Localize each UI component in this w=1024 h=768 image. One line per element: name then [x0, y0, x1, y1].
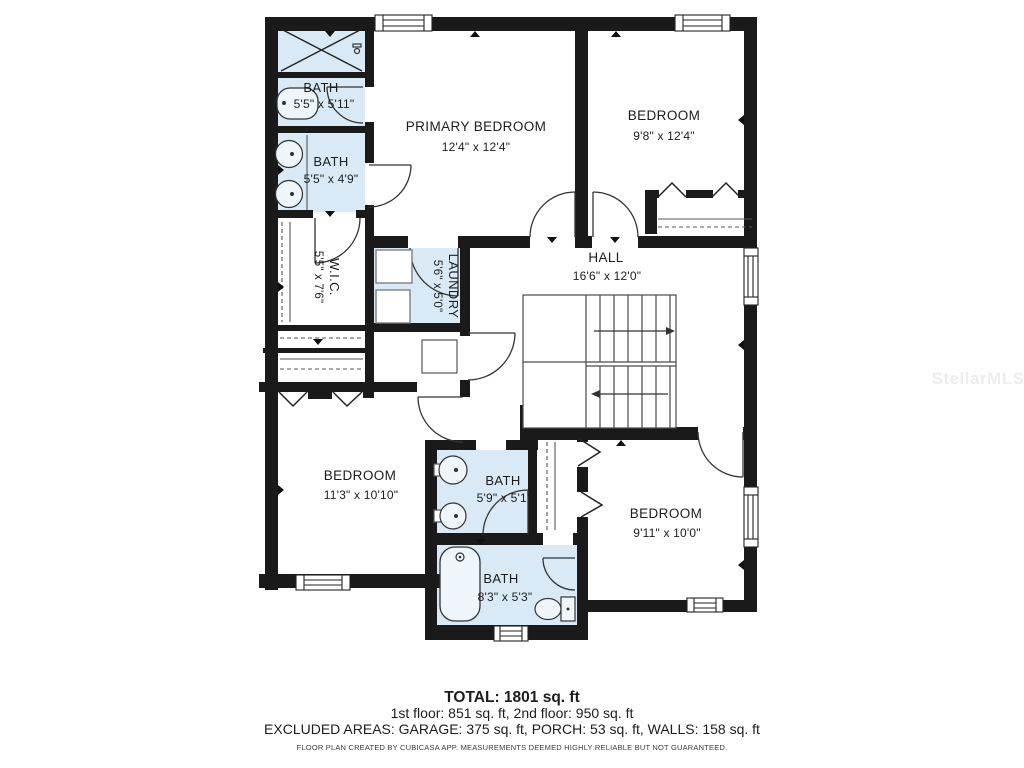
- total-area-text: TOTAL: 1801 sq. ft: [444, 689, 580, 706]
- door-bedroom-top-right: [593, 192, 638, 237]
- label-bath-vanity: BATH: [313, 154, 348, 169]
- label-bedroom-bottom-left: BEDROOM: [324, 468, 397, 483]
- label-bath-double-sink: BATH: [485, 473, 520, 488]
- dims-laundry: 5'6" x 5'0": [431, 260, 443, 312]
- window-hall-right: [744, 248, 758, 305]
- window-top-bedroom: [675, 15, 730, 31]
- label-bedroom-top-right: BEDROOM: [628, 108, 701, 123]
- bifold-closet-br-2: [581, 492, 602, 517]
- dims-bedroom-bottom-left: 11'3" x 10'10": [324, 488, 398, 502]
- door-primary-bedroom: [530, 192, 575, 237]
- excluded-areas-text: EXCLUDED AREAS: GARAGE: 375 sq. ft, PORC…: [264, 721, 760, 737]
- dims-bath-double-sink: 5'9" x 5'1": [477, 491, 532, 505]
- window-bath-tub-bottom: [494, 626, 528, 641]
- label-primary-bedroom: PRIMARY BEDROOM: [406, 119, 547, 134]
- window-bedroom-br-bottom: [687, 598, 723, 612]
- door-hall-closet: [468, 333, 515, 380]
- dims-bedroom-top-right: 9'8" x 12'4": [633, 129, 695, 143]
- floor-plan-page: BATH 5'5" x 5'11" BATH 5'5" x 4'9" PRIMA…: [0, 0, 1024, 768]
- label-bath-top: BATH: [303, 80, 338, 95]
- floor-plan-canvas: BATH 5'5" x 5'11" BATH 5'5" x 4'9" PRIMA…: [0, 0, 1024, 768]
- bifold-closet-tr-1: [658, 183, 686, 197]
- label-wic: W.I.C.: [327, 258, 342, 296]
- door-bedroom-bottom-right: [698, 432, 743, 477]
- label-bedroom-bottom-right: BEDROOM: [630, 506, 703, 521]
- bifold-closet-tr-2: [712, 183, 740, 197]
- dims-bath-vanity: 5'5" x 4'9": [304, 172, 359, 186]
- label-hall: HALL: [588, 250, 623, 265]
- label-group-wic: W.I.C. 5'5" x 7'6": [312, 251, 342, 303]
- dims-primary-bedroom: 12'4" x 12'4": [442, 140, 510, 154]
- door-bath-vanity: [369, 165, 411, 207]
- bifold-closet-br-1: [578, 438, 600, 466]
- staircase: [523, 295, 676, 428]
- label-laundry: LAUNDRY: [446, 254, 461, 319]
- dims-hall: 16'6" x 12'0": [573, 269, 641, 283]
- watermark: StellarMLS: [932, 369, 1024, 388]
- dims-wic: 5'5" x 7'6": [312, 251, 324, 303]
- hall-closet-shelf: [422, 340, 457, 373]
- window-bedroom-bl-bottom: [296, 575, 350, 590]
- bathtub-bottom-icon: [440, 547, 480, 621]
- dims-bath-tub: 8'3" x 5'3": [478, 590, 533, 604]
- label-bath-tub: BATH: [483, 571, 518, 586]
- floor-areas-text: 1st floor: 851 sq. ft, 2nd floor: 950 sq…: [391, 705, 634, 721]
- dims-bath-top: 5'5" x 5'11": [294, 97, 355, 111]
- footer: TOTAL: 1801 sq. ft 1st floor: 851 sq. ft…: [264, 689, 760, 752]
- disclaimer-text: FLOOR PLAN CREATED BY CUBICASA APP. MEAS…: [297, 743, 728, 752]
- window-bedroom-br-right: [744, 487, 758, 547]
- dims-bedroom-bottom-right: 9'11" x 10'0": [633, 526, 701, 540]
- bifold-closet-bl-1: [279, 392, 307, 406]
- toilet-icon: [535, 597, 575, 621]
- door-bedroom-bottom-left: [418, 397, 463, 442]
- bifold-closet-bl-2: [333, 392, 362, 406]
- window-top-primary: [375, 15, 432, 31]
